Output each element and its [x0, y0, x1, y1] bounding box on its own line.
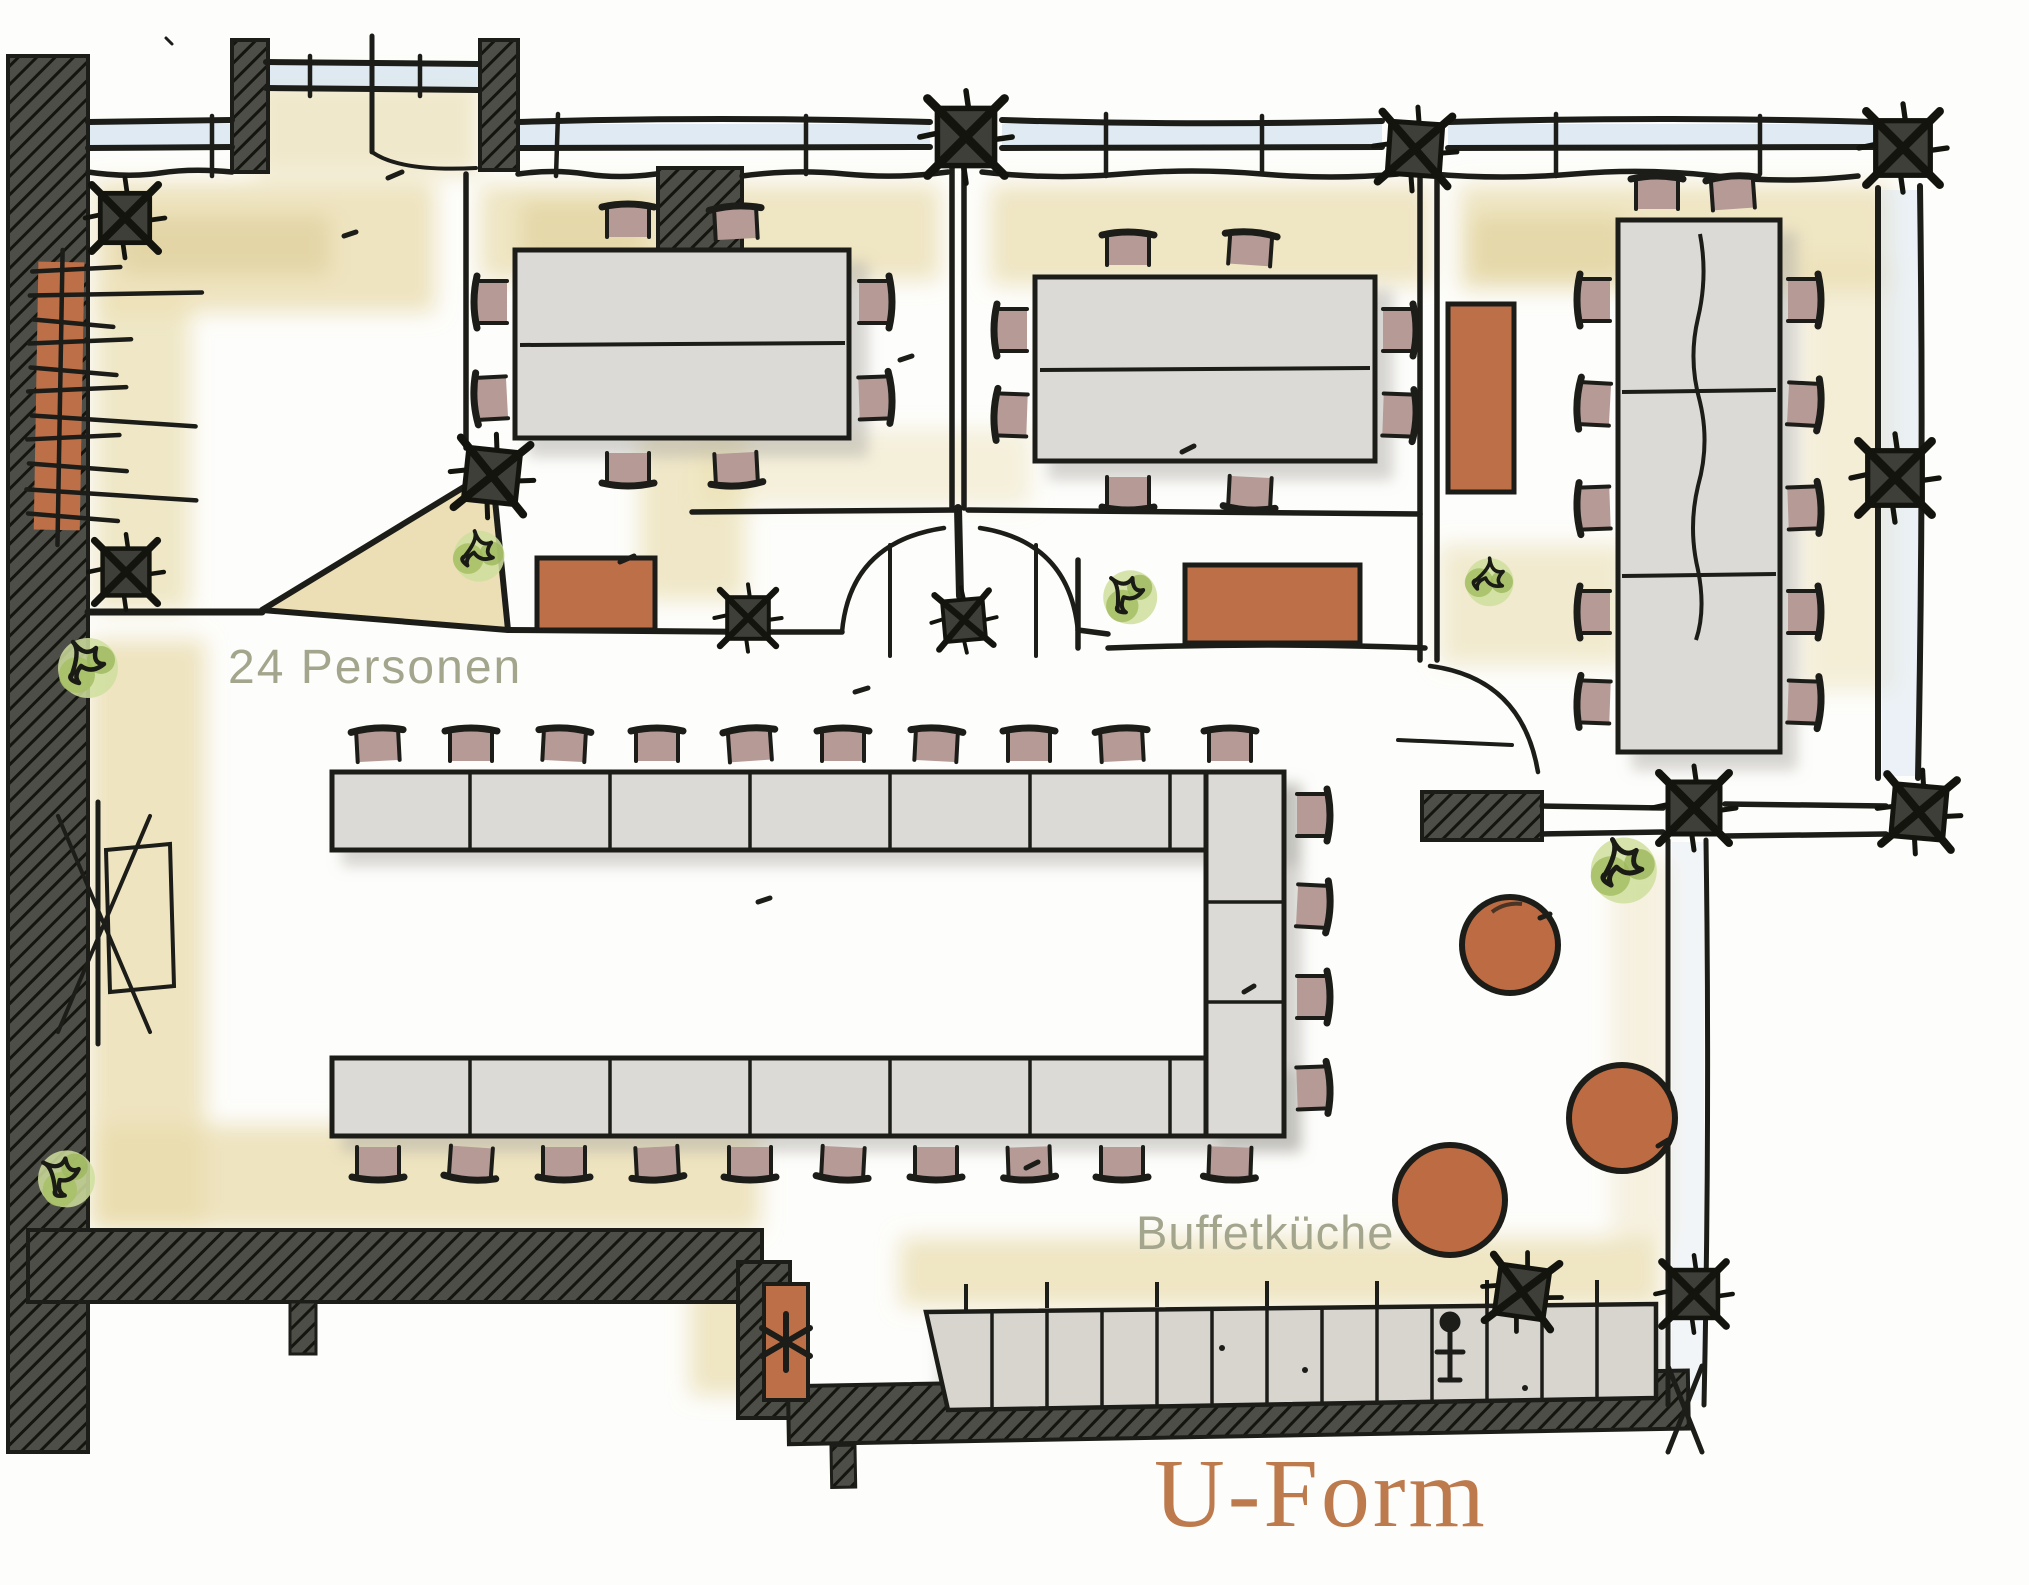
plant-icon — [1097, 564, 1163, 630]
bistro-table — [1395, 1145, 1505, 1255]
floor-plan-drawing — [0, 0, 2029, 1585]
chair — [631, 728, 683, 761]
chair — [910, 1147, 962, 1180]
chair — [1003, 1146, 1056, 1181]
chair — [538, 1147, 590, 1180]
floor-plan-sketch: 24 Personen Buffetküche U-Form — [0, 0, 2029, 1585]
chair — [1576, 377, 1612, 431]
u-shape-table — [332, 772, 1284, 1136]
chair — [1787, 481, 1822, 534]
chair — [858, 371, 893, 424]
chair — [1576, 482, 1611, 535]
chair — [1577, 274, 1610, 326]
chair — [474, 276, 507, 328]
chair — [630, 1146, 684, 1182]
entrance-pier-left — [232, 40, 268, 172]
chair — [1297, 789, 1330, 841]
column-icon — [714, 584, 781, 651]
column-icon — [929, 585, 1000, 656]
chair — [993, 388, 1028, 441]
door-threshold — [1422, 792, 1542, 840]
chair — [859, 276, 892, 328]
chair — [817, 728, 869, 761]
chair — [352, 1147, 404, 1180]
chair — [1631, 176, 1683, 209]
chair — [1096, 1147, 1148, 1180]
bistro-table — [1569, 1065, 1675, 1171]
chair — [1296, 879, 1332, 933]
chair — [1382, 389, 1417, 442]
page-title: U-Form — [1154, 1438, 1488, 1550]
corridor-door — [1398, 666, 1538, 772]
chair — [1706, 174, 1760, 211]
wall-stub — [290, 1302, 316, 1354]
entrance-pier-right — [480, 40, 518, 170]
chair — [537, 727, 591, 763]
chair — [602, 204, 654, 237]
plant-icon — [58, 638, 118, 698]
chair — [709, 452, 763, 488]
chair — [1297, 971, 1330, 1023]
chair — [1223, 476, 1277, 512]
chair — [1788, 586, 1821, 638]
meeting-room-1-table — [515, 250, 849, 438]
buffet-kitchen-label: Buffetküche — [1136, 1205, 1394, 1260]
bottom-wall-left — [28, 1230, 762, 1302]
capacity-label: 24 Personen — [228, 640, 522, 695]
bistro-table — [1462, 897, 1558, 993]
sideboard — [537, 558, 655, 630]
sideboard — [1185, 565, 1360, 643]
chair — [1576, 675, 1611, 728]
chair — [909, 727, 963, 763]
chair — [1577, 586, 1610, 638]
chair — [1383, 304, 1416, 356]
column-icon — [920, 91, 1012, 183]
meeting-room-2-table — [1035, 277, 1375, 461]
chair — [445, 728, 497, 761]
chair — [1095, 727, 1149, 763]
chair — [1003, 728, 1055, 761]
chair — [1204, 728, 1256, 761]
chair — [1102, 477, 1154, 510]
wall-stub-small — [831, 1445, 856, 1487]
sideboard — [1448, 304, 1514, 492]
meeting-room-3-table — [1618, 220, 1780, 752]
chair — [1203, 1146, 1256, 1181]
chair — [1787, 676, 1822, 729]
chair — [1787, 377, 1823, 431]
chair — [709, 205, 763, 241]
chair — [994, 304, 1027, 356]
chair — [473, 371, 509, 425]
chair — [1296, 1061, 1331, 1114]
chair — [351, 727, 405, 763]
chair — [816, 1146, 870, 1182]
chair — [1102, 232, 1154, 265]
chair — [724, 1147, 776, 1180]
chair — [1788, 274, 1821, 326]
chair — [723, 726, 777, 763]
chair — [602, 453, 654, 486]
chair — [444, 1145, 498, 1182]
chair — [1223, 230, 1277, 267]
